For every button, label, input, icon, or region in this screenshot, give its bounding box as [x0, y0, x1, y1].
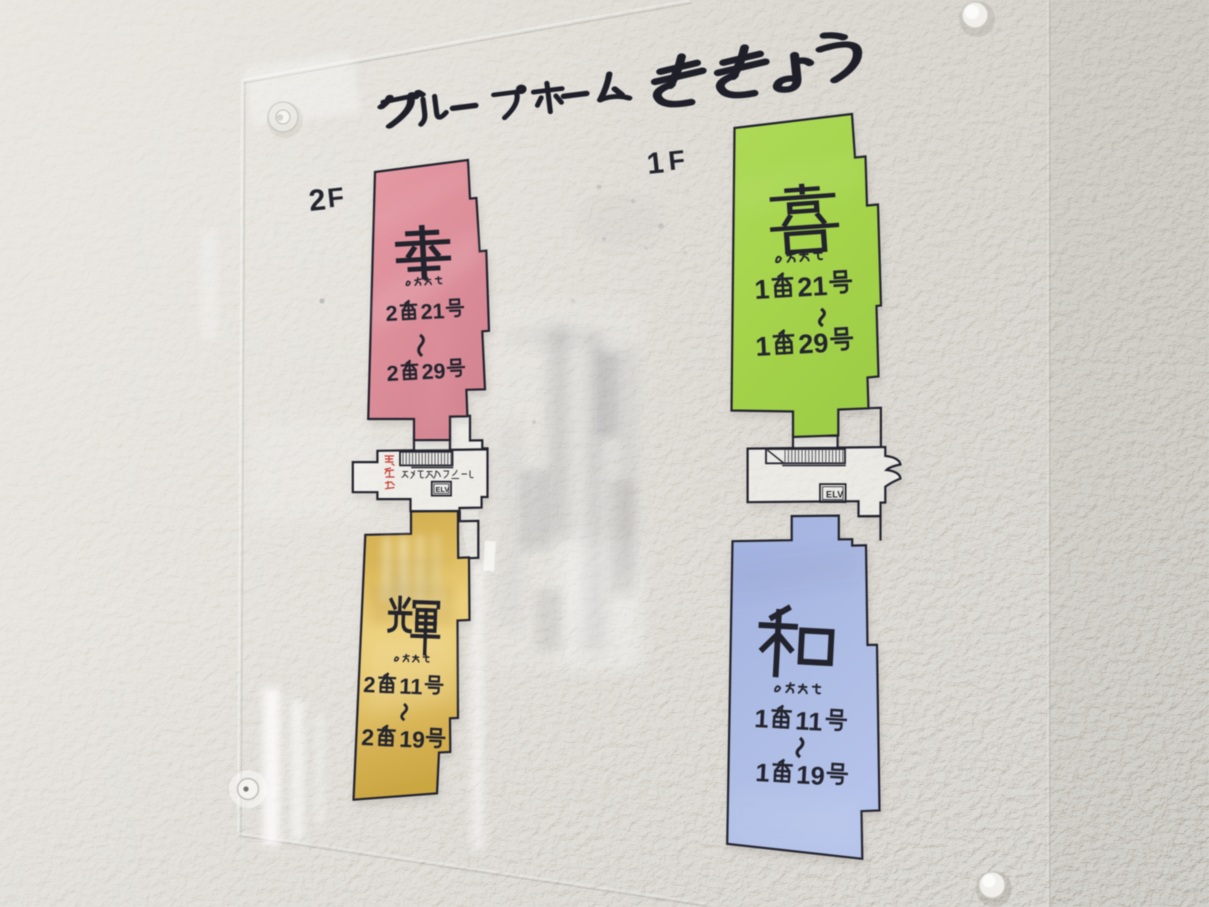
svg-text:1: 1	[755, 331, 772, 362]
svg-text:2: 2	[361, 724, 375, 751]
svg-text:11: 11	[795, 707, 823, 736]
svg-text:21: 21	[797, 271, 829, 303]
svg-text:19: 19	[796, 761, 826, 791]
svg-text:2: 2	[363, 672, 376, 697]
svg-text:ELV: ELV	[436, 485, 450, 494]
svg-text:2: 2	[386, 361, 399, 386]
svg-text:21: 21	[420, 299, 445, 324]
svg-text:1: 1	[754, 705, 770, 734]
svg-text:1: 1	[754, 274, 771, 305]
svg-text:2F: 2F	[307, 181, 345, 217]
svg-text:11: 11	[399, 673, 423, 699]
svg-text:ELV: ELV	[826, 490, 843, 500]
svg-text:29: 29	[798, 328, 830, 360]
svg-text:1F: 1F	[645, 144, 686, 181]
svg-text:19: 19	[399, 726, 426, 753]
svg-text:2: 2	[385, 301, 398, 326]
svg-text:29: 29	[421, 359, 446, 384]
svg-text:1: 1	[755, 759, 771, 788]
